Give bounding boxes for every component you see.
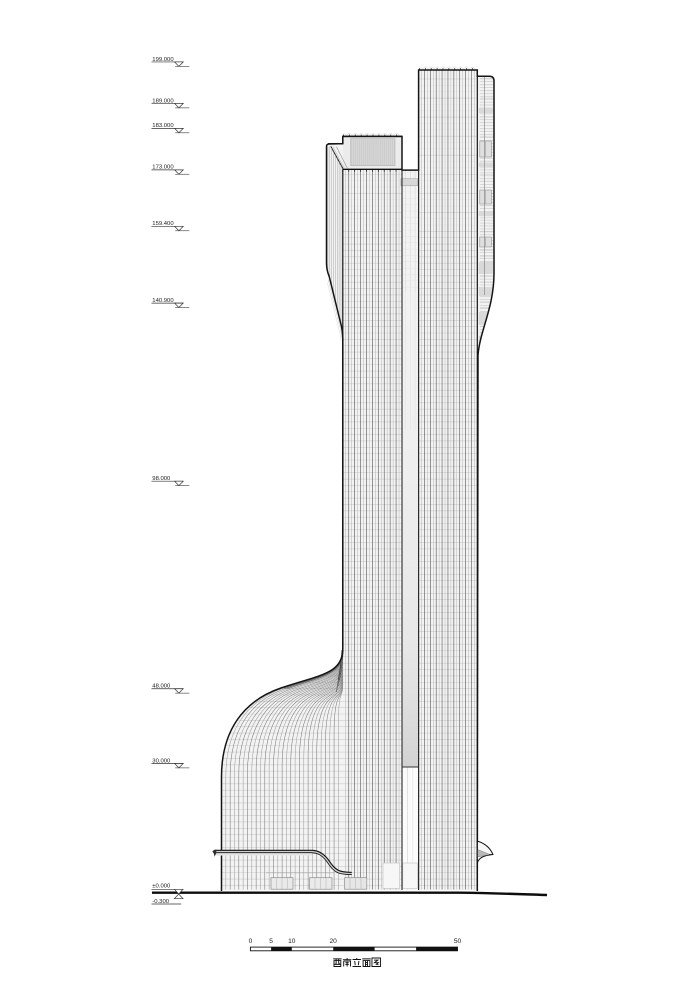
svg-text:50: 50 — [454, 938, 462, 945]
svg-text:±0.000: ±0.000 — [152, 884, 171, 890]
svg-text:10: 10 — [288, 938, 296, 945]
svg-text:5: 5 — [269, 938, 273, 945]
svg-text:20: 20 — [330, 938, 338, 945]
svg-text:0: 0 — [249, 938, 253, 945]
